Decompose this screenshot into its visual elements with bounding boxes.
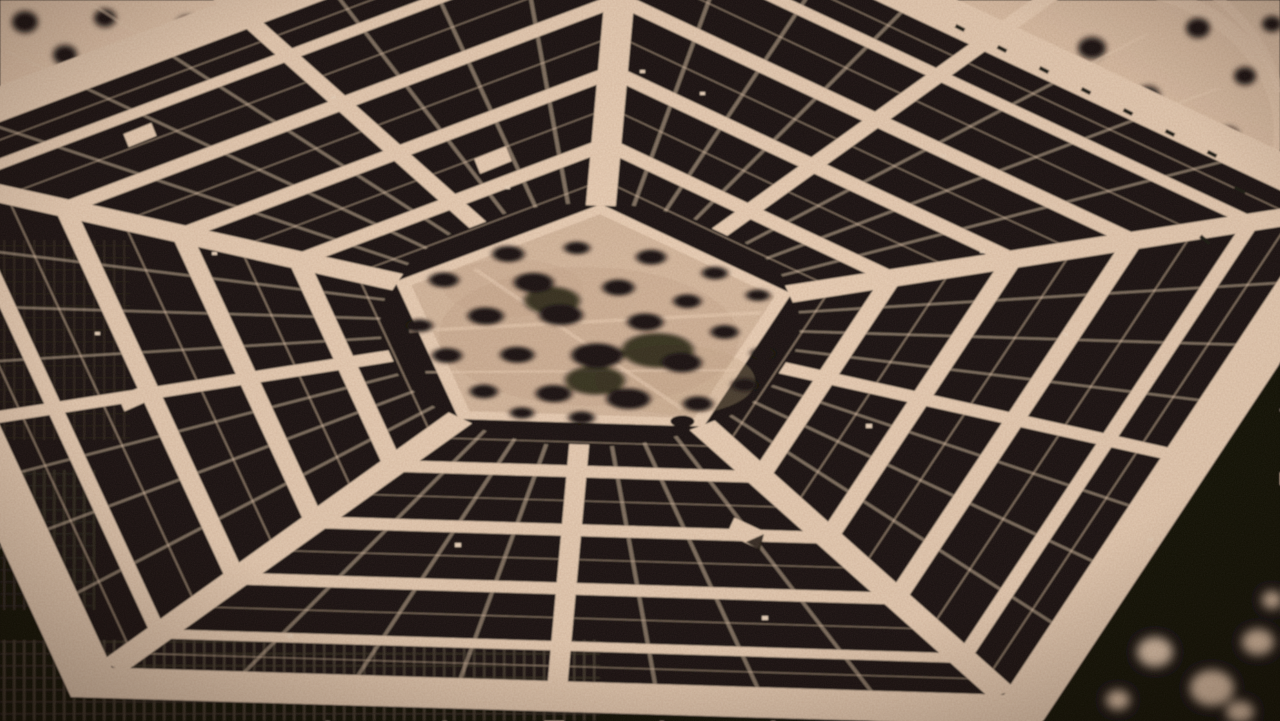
photo-frame	[0, 0, 1280, 721]
vignette-overlay	[0, 0, 1280, 721]
pentagon-aerial-photograph	[0, 0, 1280, 721]
